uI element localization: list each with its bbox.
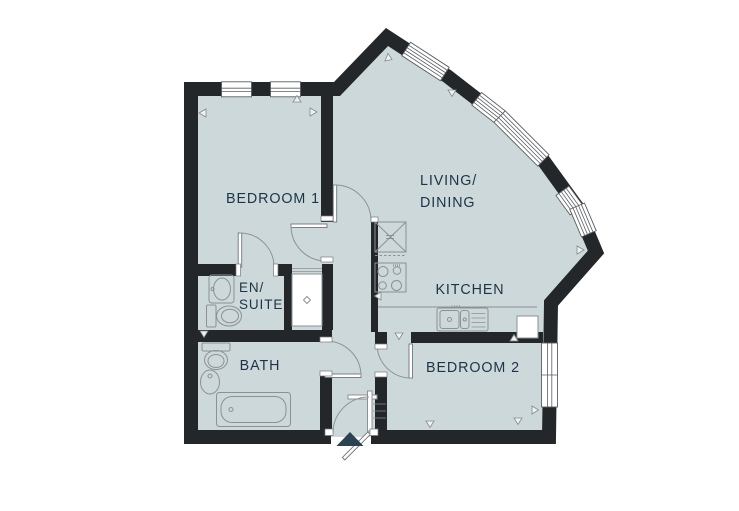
- living-dining-label-line1: LIVING/: [420, 173, 477, 189]
- ensuite-label-line1: EN/: [239, 280, 264, 295]
- wall-ensuite-top-left: [195, 264, 240, 276]
- living-dining-label-line2: DINING: [420, 195, 475, 211]
- bedroom2-window: [542, 343, 558, 407]
- bedroom1-label: BEDROOM 1: [226, 191, 320, 207]
- wall-bedroom1-living: [321, 95, 333, 222]
- floorplan-drawing: BEDROOM 1 LIVING/ DINING KITCHEN EN/ SUI…: [0, 0, 739, 511]
- wall-hall-left-upper: [322, 264, 333, 330]
- wall-cupboard-left: [284, 264, 292, 330]
- bedroom2-label: BEDROOM 2: [426, 360, 520, 376]
- wall-bedroom2-hall: [375, 377, 387, 436]
- bedroom1-window-2: [271, 82, 301, 97]
- kitchen-label: KITCHEN: [435, 282, 504, 298]
- wardrobe-cupboard: [292, 269, 322, 327]
- bedroom1-window-1: [222, 82, 252, 97]
- bath-label: BATH: [240, 358, 281, 374]
- ensuite-label-line2: SUITE: [239, 297, 283, 312]
- wall-ensuite-bath: [195, 330, 332, 342]
- boiler-cupboard: [517, 316, 538, 338]
- wall-bath-hall: [320, 376, 332, 436]
- floorplan-page: BEDROOM 1 LIVING/ DINING KITCHEN EN/ SUI…: [0, 0, 739, 511]
